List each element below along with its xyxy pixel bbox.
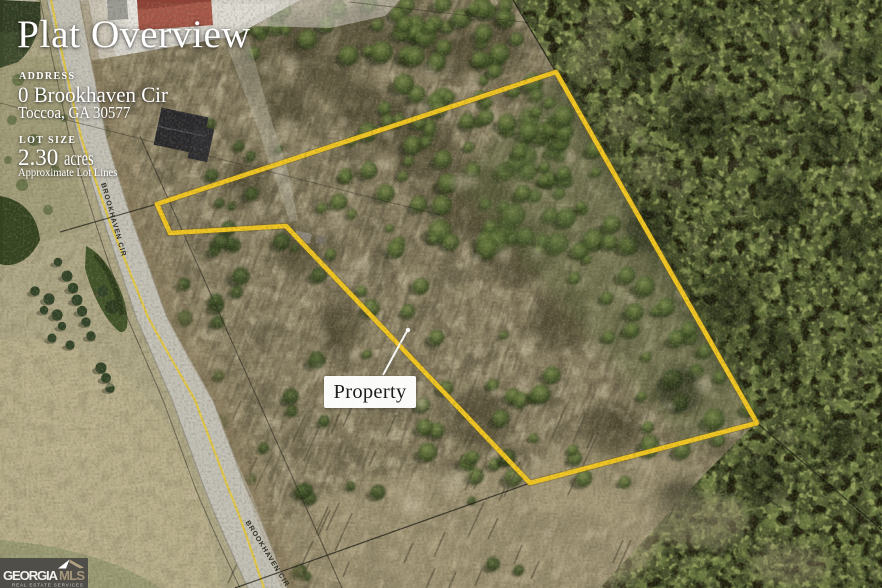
svg-text:GEORGIA: GEORGIA — [3, 568, 58, 583]
svg-text:REAL ESTATE SERVICES: REAL ESTATE SERVICES — [12, 583, 84, 588]
svg-text:MLS: MLS — [59, 568, 85, 583]
